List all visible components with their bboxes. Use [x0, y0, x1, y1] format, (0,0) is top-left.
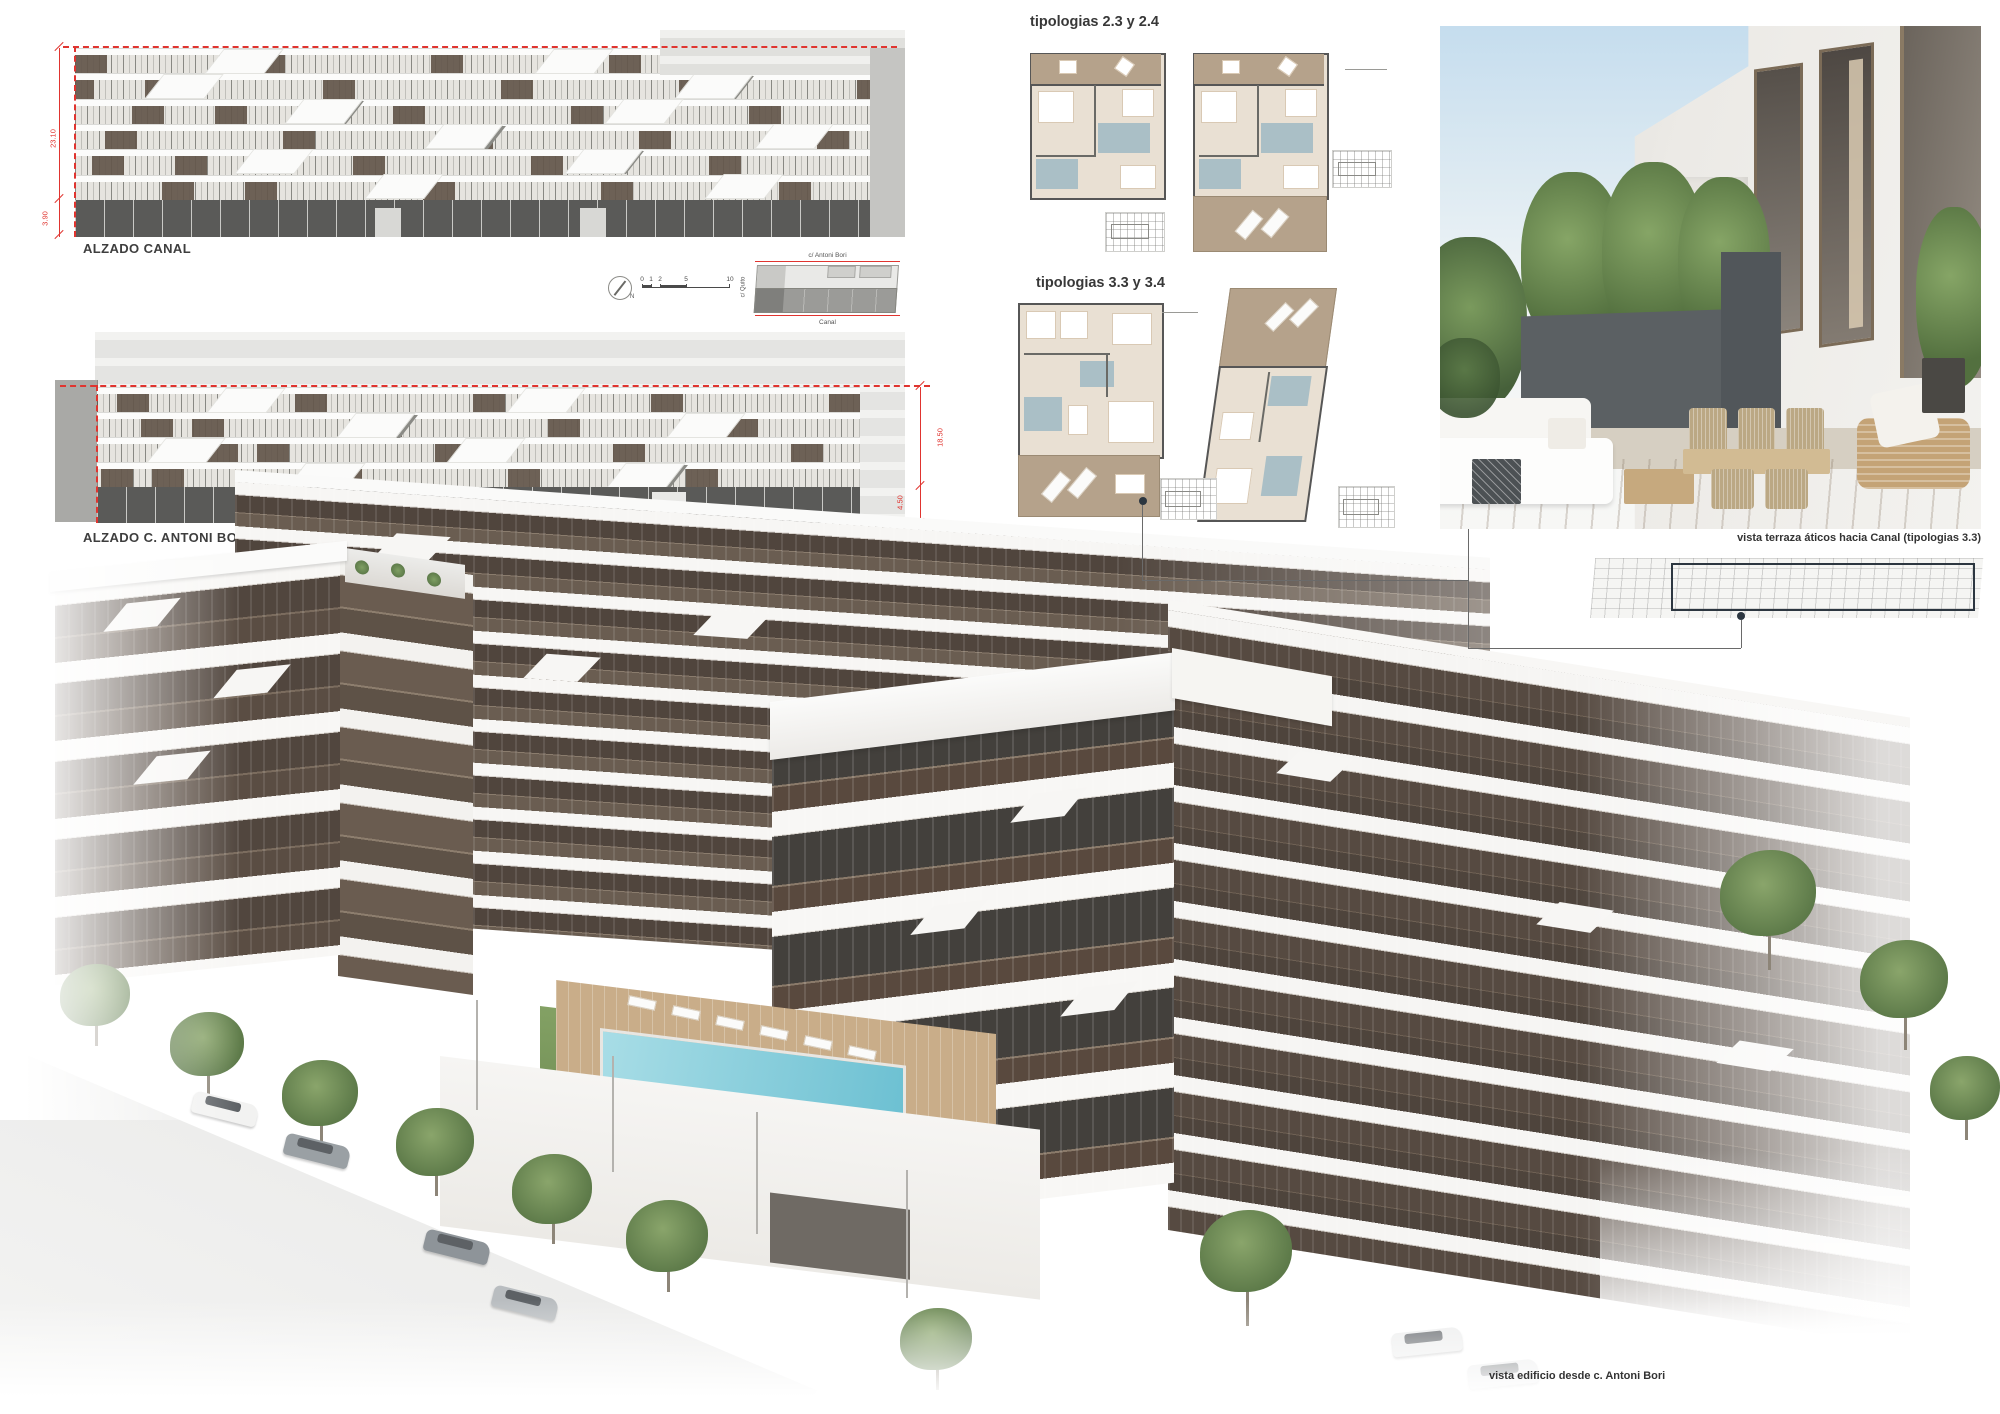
level-key-plan — [1590, 558, 1978, 618]
street-tree — [626, 1186, 708, 1292]
section-marker-dot — [1139, 497, 1147, 505]
street-tree — [282, 1046, 358, 1146]
street-lamp — [756, 1112, 758, 1234]
dining-chair — [1711, 469, 1754, 509]
dining-chair — [1765, 469, 1808, 509]
plant-pot — [1922, 358, 1965, 413]
leader-line — [1142, 505, 1143, 580]
street-lamp — [906, 1170, 908, 1298]
street-tree — [396, 1094, 474, 1196]
street-lamp — [476, 1000, 478, 1110]
leader-line — [1468, 648, 1741, 649]
roof-plant — [391, 562, 405, 578]
render-fade — [0, 1300, 2000, 1414]
curtain — [1848, 58, 1863, 328]
left-wing-side-facade — [338, 556, 473, 995]
presentation-board: 23.10 3.90 ALZADO CANAL N 0 1 2 5 10 c/ … — [0, 0, 2000, 1414]
garage-entrance — [770, 1193, 910, 1280]
street-tree — [512, 1140, 592, 1244]
street-tree — [1930, 1040, 2000, 1140]
plaid-throw — [1472, 459, 1521, 504]
facade-wave — [1060, 981, 1137, 1017]
terrace-render — [1440, 26, 1981, 529]
key-plan-highlight — [1671, 563, 1975, 611]
facade-wave — [910, 900, 987, 936]
roof-plant — [355, 559, 369, 575]
street-lamp — [612, 1056, 614, 1172]
street-tree — [1860, 930, 1948, 1050]
leader-line — [1741, 620, 1742, 648]
render-fade — [0, 560, 240, 1120]
building-caption: vista edificio desde c. Antoni Bori — [1489, 1370, 1665, 1382]
dining-table — [1683, 449, 1829, 474]
leader-line — [1142, 580, 1468, 581]
section-marker-dot — [1737, 612, 1745, 620]
roof-plant — [427, 572, 441, 588]
coffee-table — [1624, 469, 1694, 504]
sofa-seat — [1440, 438, 1613, 503]
facade-wave — [1010, 787, 1087, 823]
street-tree — [1720, 840, 1816, 970]
foreground-frond — [1440, 338, 1500, 418]
penthouse-window — [1819, 42, 1874, 347]
leader-line — [1468, 529, 1469, 648]
sofa-cushion — [1548, 418, 1586, 448]
terrace-caption: vista terraza áticos hacia Canal (tipolo… — [1440, 532, 1981, 544]
